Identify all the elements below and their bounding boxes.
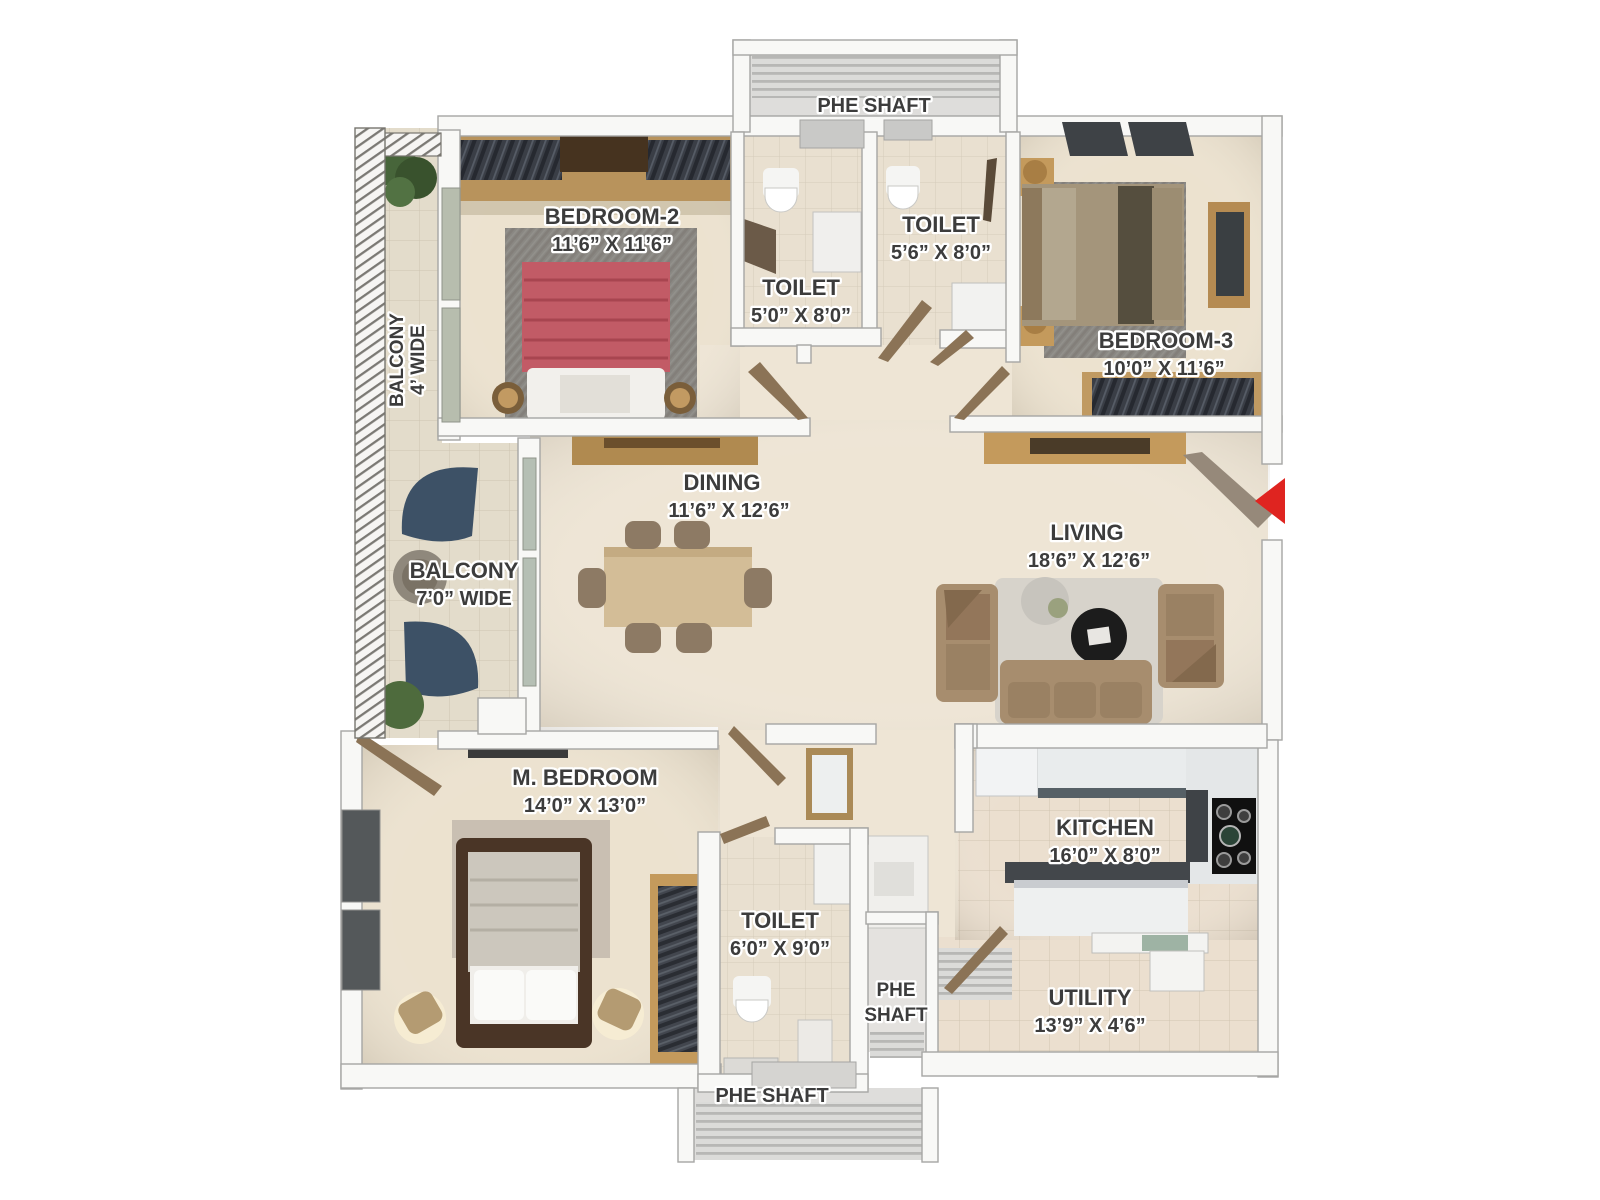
svg-text:SHAFT: SHAFT xyxy=(864,1005,928,1026)
svg-text:PHE SHAFT: PHE SHAFT xyxy=(817,95,930,117)
svg-text:10’0” X 11’6”: 10’0” X 11’6” xyxy=(1103,358,1224,380)
svg-text:4’ WIDE: 4’ WIDE xyxy=(408,325,429,395)
svg-text:13’9” X 4’6”: 13’9” X 4’6” xyxy=(1034,1015,1145,1037)
svg-text:PHE SHAFT: PHE SHAFT xyxy=(715,1085,828,1107)
svg-text:11’6” X 12’6”: 11’6” X 12’6” xyxy=(668,500,789,522)
svg-text:BALCONY: BALCONY xyxy=(387,313,408,407)
svg-text:LIVING: LIVING xyxy=(1050,520,1123,545)
svg-text:6’0” X 9’0”: 6’0” X 9’0” xyxy=(730,938,830,960)
svg-text:TOILET: TOILET xyxy=(741,908,819,933)
svg-text:UTILITY: UTILITY xyxy=(1048,985,1131,1010)
svg-text:TOILET: TOILET xyxy=(902,212,980,237)
svg-text:DINING: DINING xyxy=(684,470,761,495)
svg-text:KITCHEN: KITCHEN xyxy=(1056,815,1154,840)
svg-text:5’6” X 8’0”: 5’6” X 8’0” xyxy=(891,242,991,264)
svg-text:M. BEDROOM: M. BEDROOM xyxy=(512,765,657,790)
svg-text:7’0” WIDE: 7’0” WIDE xyxy=(416,588,512,610)
svg-text:BEDROOM-3: BEDROOM-3 xyxy=(1099,328,1233,353)
svg-text:5’0” X 8’0”: 5’0” X 8’0” xyxy=(751,305,851,327)
svg-text:14’0” X 13’0”: 14’0” X 13’0” xyxy=(524,795,646,817)
svg-text:TOILET: TOILET xyxy=(762,275,840,300)
svg-text:BEDROOM-2: BEDROOM-2 xyxy=(545,204,679,229)
svg-text:18’6” X 12’6”: 18’6” X 12’6” xyxy=(1028,550,1150,572)
svg-text:11’6” X 11’6”: 11’6” X 11’6” xyxy=(552,234,672,256)
svg-text:PHE: PHE xyxy=(876,980,915,1001)
svg-text:BALCONY: BALCONY xyxy=(410,558,519,583)
svg-text:16’0” X 8’0”: 16’0” X 8’0” xyxy=(1049,845,1160,867)
